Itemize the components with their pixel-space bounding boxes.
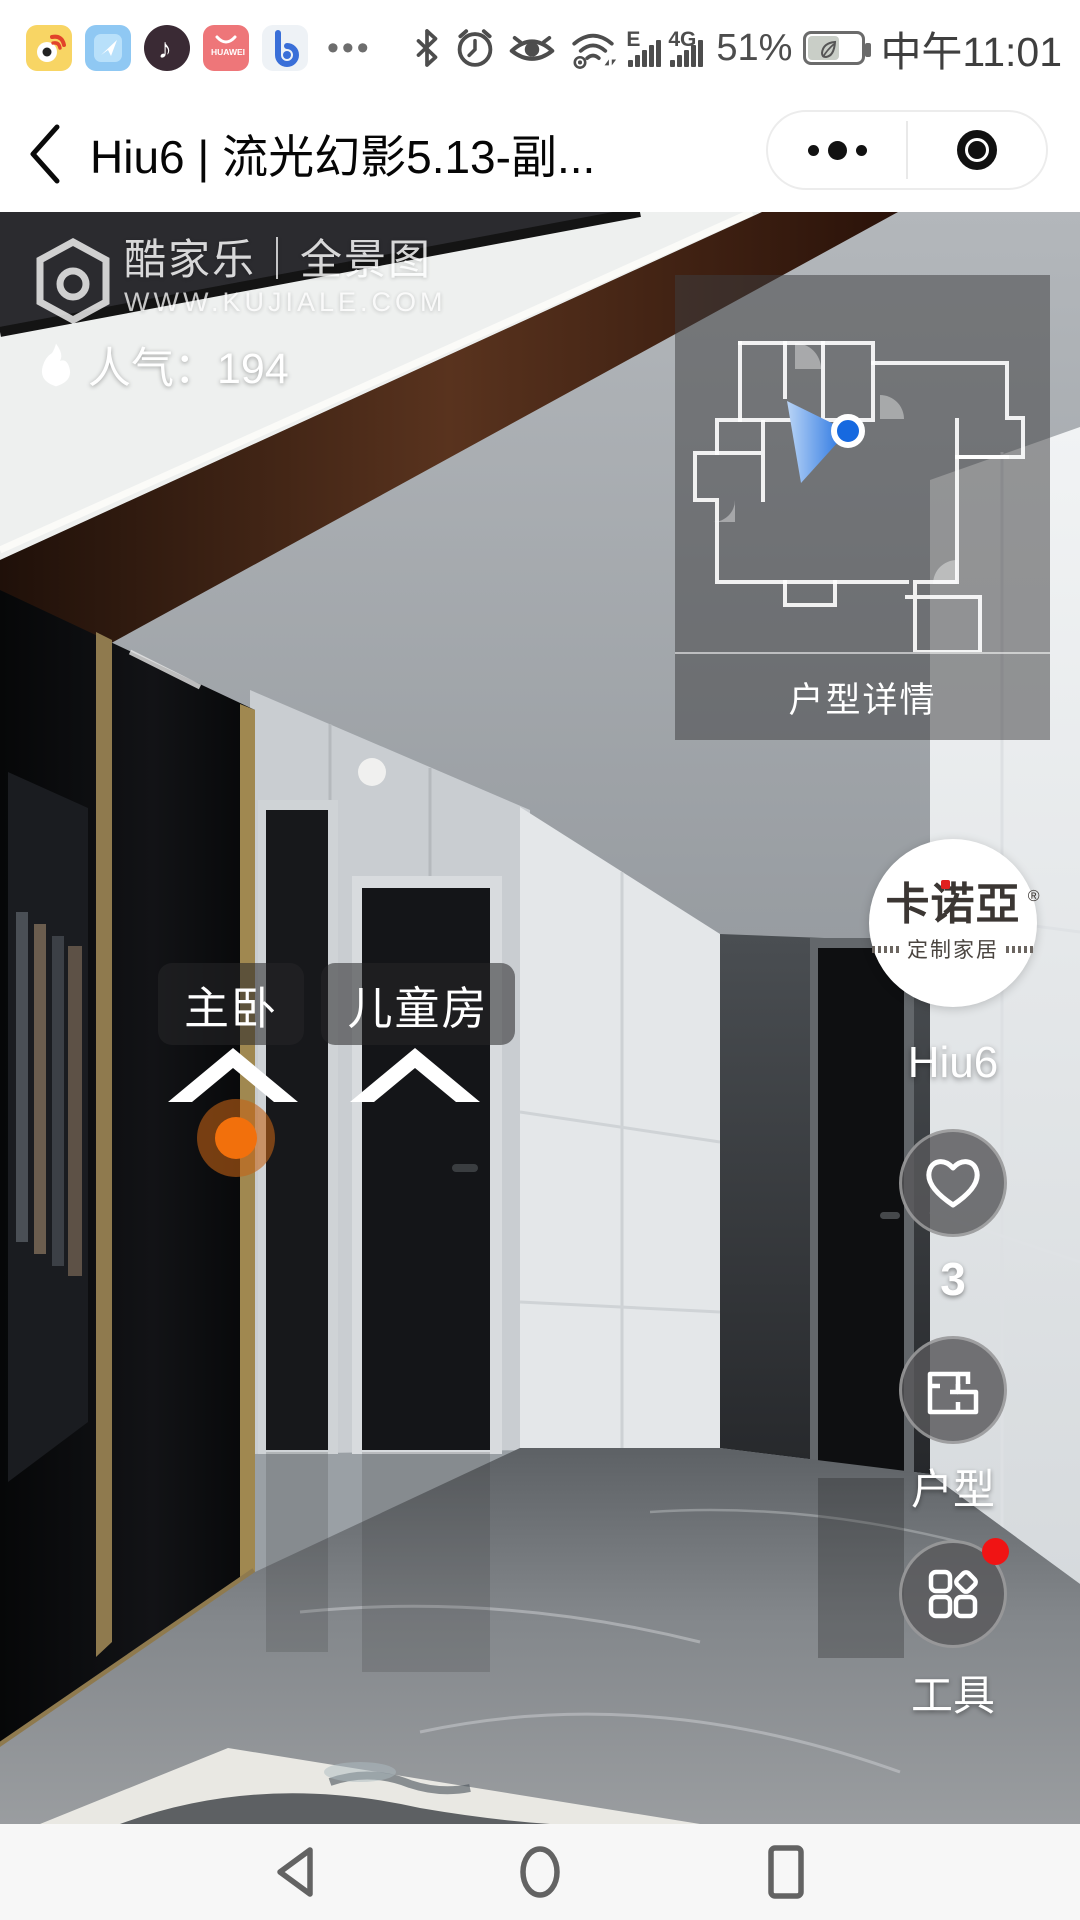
signal-e-icon: E	[628, 30, 661, 67]
brand-badge: 卡诺亞 ® 定制家居	[869, 839, 1037, 1007]
watermark: 酷家乐｜全景图 WWW.KUJIALE.COM	[36, 236, 447, 324]
home-circle-icon	[517, 1843, 563, 1901]
watermark-title: 酷家乐｜全景图	[124, 236, 447, 284]
brand-red-dot	[941, 880, 950, 889]
tools-notification-dot	[982, 1538, 1009, 1565]
heart-icon	[922, 1155, 984, 1211]
tools-grid-icon	[924, 1565, 982, 1623]
floorplan-button[interactable]	[899, 1336, 1007, 1444]
back-triangle-icon	[270, 1844, 318, 1900]
floorplan-map	[675, 275, 1050, 652]
tiktok-icon: ♪	[144, 25, 190, 71]
browser-icon	[262, 25, 308, 71]
hotspot-arrow-master-bedroom[interactable]	[168, 1048, 298, 1102]
kujiale-logo-icon	[36, 238, 110, 324]
nav-home-button[interactable]	[510, 1842, 570, 1902]
popularity-counter: 人气：194	[36, 334, 289, 396]
signal-4g-icon: 4G	[670, 30, 703, 67]
miniprogram-capsule	[766, 110, 1048, 190]
more-notifications-dots: •••	[327, 29, 372, 68]
nav-recents-button[interactable]	[756, 1842, 816, 1902]
floorplan-detail-button[interactable]: 户型详情	[675, 654, 1050, 740]
floorplan-icon	[924, 1362, 982, 1418]
more-dots-icon	[808, 141, 867, 160]
svg-text:HUAWEI: HUAWEI	[211, 47, 245, 57]
android-navbar	[0, 1824, 1080, 1920]
wifi-icon	[567, 26, 619, 70]
exit-circle-icon	[957, 130, 997, 170]
clock-time: 中午11:01	[880, 18, 1062, 78]
back-button[interactable]	[0, 96, 90, 212]
favorite-count: 3	[899, 1252, 1007, 1306]
exit-button[interactable]	[908, 112, 1046, 188]
weibo-icon	[26, 25, 72, 71]
tools-label: 工具	[899, 1662, 1007, 1723]
battery-saver-leaf-icon	[803, 31, 865, 65]
status-bar: ♪ HUAWEI ••• E 4G 51%	[0, 0, 1080, 96]
favorite-button[interactable]	[899, 1129, 1007, 1237]
phone-screen: ♪ HUAWEI ••• E 4G 51%	[0, 0, 1080, 1920]
walk-hotspot-dot[interactable]	[197, 1099, 275, 1177]
system-status-icons: E 4G 51% 中午11:01	[410, 18, 1062, 78]
huawei-store-icon: HUAWEI	[203, 25, 249, 71]
svg-text:♪: ♪	[158, 33, 172, 64]
alarm-icon	[453, 26, 497, 70]
page-title: Hiu6 | 流光幻影5.13-副...	[90, 121, 595, 187]
messenger-icon	[85, 25, 131, 71]
battery-percent: 51%	[716, 27, 792, 70]
scene-name-label: Hiu6	[869, 1038, 1037, 1088]
back-chevron-icon	[23, 121, 67, 187]
notification-icons: ♪ HUAWEI •••	[26, 25, 372, 71]
brand-name: 卡诺亞 ®	[886, 882, 1021, 928]
panorama-viewport[interactable]: 酷家乐｜全景图 WWW.KUJIALE.COM 人气：194	[0, 212, 1080, 1824]
popularity-text: 人气：194	[88, 334, 289, 396]
flame-icon	[36, 341, 76, 389]
app-header: Hiu6 | 流光幻影5.13-副...	[0, 96, 1080, 212]
more-options-button[interactable]	[768, 112, 906, 188]
hotspot-label-master-bedroom[interactable]: 主卧	[158, 963, 304, 1045]
bluetooth-icon	[410, 26, 444, 70]
hotspot-label-kids-room[interactable]: 儿童房	[321, 963, 515, 1045]
minimap-panel[interactable]: 户型详情	[675, 275, 1050, 740]
eye-comfort-icon	[506, 26, 558, 70]
hotspot-arrow-kids-room[interactable]	[350, 1048, 480, 1102]
recents-square-icon	[766, 1843, 806, 1901]
nav-back-button[interactable]	[264, 1842, 324, 1902]
floorplan-label: 户型	[899, 1456, 1007, 1517]
brand-subtitle: 定制家居	[872, 934, 1034, 964]
watermark-url: WWW.KUJIALE.COM	[124, 284, 447, 320]
